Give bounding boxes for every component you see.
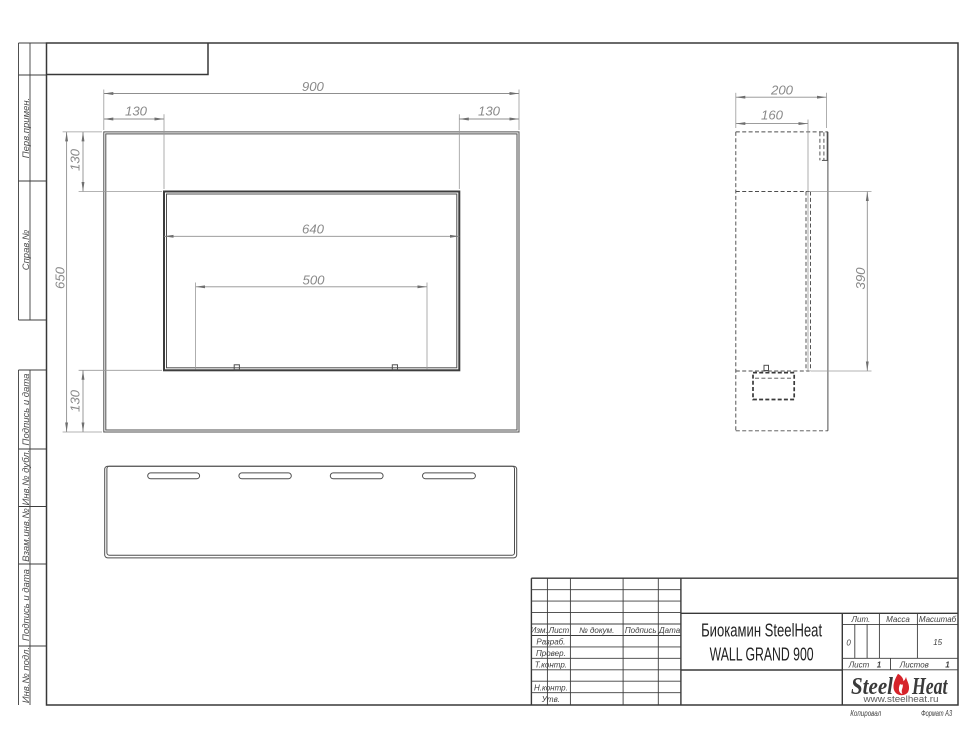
svg-text:Биокамин SteelHeat: Биокамин SteelHeat <box>701 621 822 641</box>
svg-text:Инв.№ дубл.: Инв.№ дубл. <box>21 450 32 506</box>
svg-text:Утв.: Утв. <box>541 695 560 704</box>
svg-text:0: 0 <box>846 639 851 648</box>
svg-text:Инв.№ подл.: Инв.№ подл. <box>21 647 32 703</box>
svg-text:Изм.: Изм. <box>531 626 548 635</box>
svg-text:900: 900 <box>302 79 325 94</box>
svg-text:650: 650 <box>53 266 68 289</box>
svg-text:www.steelheat.ru: www.steelheat.ru <box>862 694 938 705</box>
svg-text:Подпись и дата: Подпись и дата <box>21 374 32 446</box>
svg-text:Взам.инв.№: Взам.инв.№ <box>21 508 32 561</box>
svg-text:Перв.примен.: Перв.примен. <box>21 98 32 159</box>
svg-text:1: 1 <box>945 661 950 670</box>
svg-text:Листов: Листов <box>899 661 929 670</box>
svg-text:160: 160 <box>761 108 784 123</box>
svg-text:Подпись: Подпись <box>625 626 657 635</box>
svg-text:WALL GRAND 900: WALL GRAND 900 <box>710 645 814 665</box>
svg-text:1: 1 <box>877 661 882 670</box>
svg-text:130: 130 <box>125 103 148 118</box>
svg-text:№ докум.: № докум. <box>579 626 614 635</box>
svg-text:15: 15 <box>933 638 942 647</box>
svg-text:Т.контр.: Т.контр. <box>535 661 567 670</box>
svg-text:Масштаб: Масштаб <box>919 615 957 624</box>
svg-text:Н.контр.: Н.контр. <box>534 683 568 692</box>
svg-text:Масса: Масса <box>886 615 910 624</box>
svg-text:130: 130 <box>68 389 83 412</box>
svg-text:Подпись и дата: Подпись и дата <box>21 569 32 641</box>
svg-text:Провер.: Провер. <box>536 649 566 658</box>
svg-text:130: 130 <box>478 103 501 118</box>
svg-text:Разраб.: Разраб. <box>536 638 565 647</box>
svg-text:Лит.: Лит. <box>851 615 871 624</box>
svg-text:500: 500 <box>302 273 325 288</box>
svg-text:Лист: Лист <box>548 626 570 635</box>
svg-text:390: 390 <box>853 267 868 290</box>
svg-text:Дата: Дата <box>658 626 681 635</box>
svg-text:Справ.№: Справ.№ <box>21 230 32 271</box>
svg-text:Копировал: Копировал <box>850 709 881 718</box>
svg-text:200: 200 <box>770 82 794 97</box>
svg-text:Формат А3: Формат А3 <box>921 709 952 718</box>
svg-text:640: 640 <box>302 222 325 237</box>
svg-text:Лист: Лист <box>848 661 870 670</box>
svg-text:130: 130 <box>68 148 83 171</box>
